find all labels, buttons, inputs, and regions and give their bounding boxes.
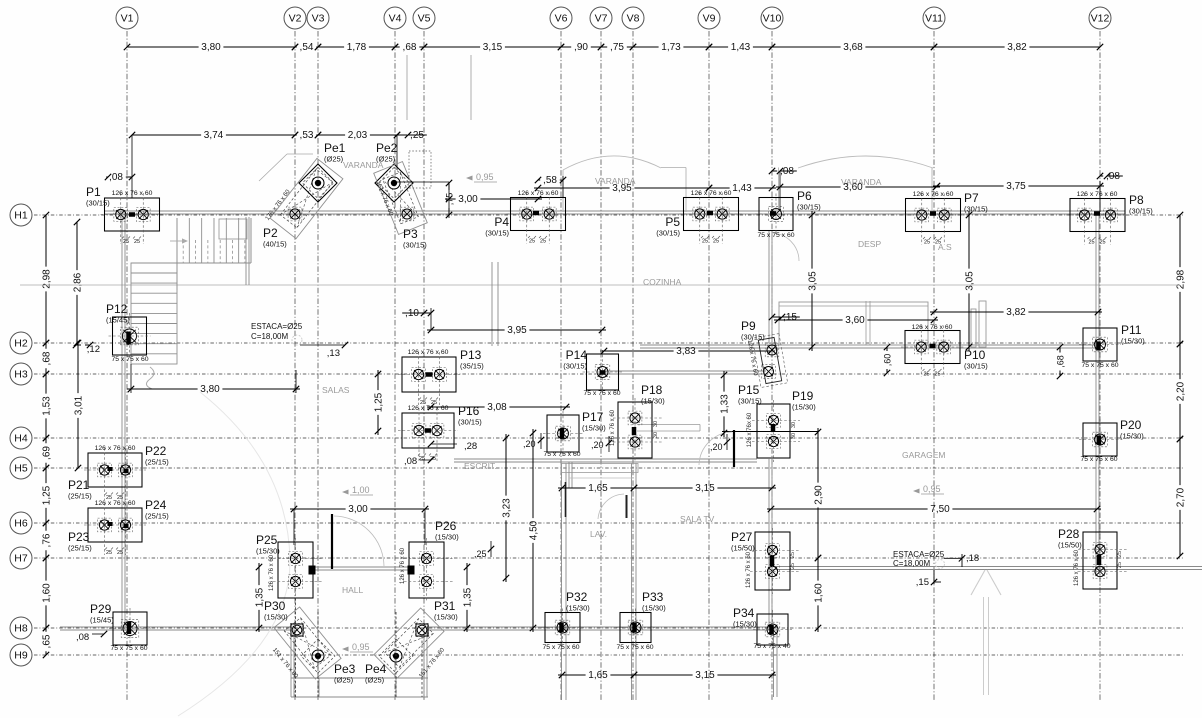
svg-text:Pe1: Pe1 (324, 141, 346, 155)
svg-text:C=18,00M: C=18,00M (251, 332, 288, 341)
svg-text:(30/15): (30/15) (485, 229, 509, 238)
svg-text:1,00: 1,00 (352, 485, 370, 495)
svg-text:ESTACA=Ø25: ESTACA=Ø25 (251, 322, 303, 331)
svg-text:30: 30 (653, 432, 659, 438)
svg-text:(15/30): (15/30) (1120, 432, 1144, 441)
svg-text:P12: P12 (106, 302, 128, 316)
svg-text:P28: P28 (1058, 527, 1080, 541)
svg-text:75 x 75 x 40: 75 x 75 x 40 (753, 643, 790, 650)
svg-text:,68: ,68 (403, 42, 417, 53)
svg-text:126 x 76 x 60: 126 x 76 x 60 (95, 500, 136, 507)
svg-text:Pe3: Pe3 (334, 662, 356, 676)
svg-text:P32: P32 (566, 590, 588, 604)
svg-text:25: 25 (529, 239, 535, 245)
svg-text:(30/15): (30/15) (656, 229, 680, 238)
svg-text:3,80: 3,80 (200, 384, 220, 395)
svg-text:(15/30): (15/30) (566, 604, 590, 613)
svg-text:,68: ,68 (42, 351, 53, 365)
svg-text:V4: V4 (389, 13, 402, 25)
svg-text:P13: P13 (460, 348, 482, 362)
svg-text:25: 25 (923, 372, 929, 378)
svg-text:,12: ,12 (87, 344, 100, 355)
svg-text:P34: P34 (733, 606, 755, 620)
svg-text:ESCRIT.: ESCRIT. (464, 461, 497, 471)
svg-text:P2: P2 (263, 226, 278, 240)
svg-text:75 x 75 x 60: 75 x 75 x 60 (583, 390, 620, 397)
svg-text:,69: ,69 (42, 446, 53, 460)
svg-text:25: 25 (934, 372, 940, 378)
svg-text:(25/15): (25/15) (145, 512, 169, 521)
svg-text:75 x 75 x 60: 75 x 75 x 60 (1080, 456, 1117, 463)
svg-text:,58: ,58 (543, 175, 557, 186)
svg-text:SALA TV: SALA TV (680, 514, 715, 524)
svg-text:V1: V1 (121, 13, 134, 25)
svg-text:0,95: 0,95 (476, 172, 494, 182)
svg-text:1,73: 1,73 (661, 42, 681, 53)
svg-text:,10: ,10 (405, 308, 419, 319)
svg-text:30: 30 (791, 422, 797, 428)
svg-text:H2: H2 (14, 338, 28, 350)
svg-text:(15/30): (15/30) (792, 403, 816, 412)
svg-text:(15/30): (15/30) (264, 613, 288, 622)
svg-text:3,82: 3,82 (1006, 307, 1026, 318)
svg-text:25: 25 (419, 456, 425, 462)
svg-text:(30/15): (30/15) (741, 333, 765, 342)
svg-text:P21: P21 (68, 478, 90, 492)
svg-text:7,50: 7,50 (930, 504, 950, 515)
svg-text:1,53: 1,53 (42, 396, 53, 416)
svg-text:(15/30): (15/30) (256, 547, 280, 556)
svg-text:126 x 76x 60: 126 x 76x 60 (747, 412, 753, 447)
svg-text:P31: P31 (434, 599, 456, 613)
svg-text:(35/15): (35/15) (460, 362, 484, 371)
svg-text:3,05: 3,05 (808, 271, 819, 291)
svg-text:(15/30): (15/30) (733, 620, 757, 629)
svg-text:1,35: 1,35 (255, 587, 266, 607)
svg-text:3,60: 3,60 (845, 315, 865, 326)
svg-text:3,80: 3,80 (201, 42, 221, 53)
svg-text:P30: P30 (264, 599, 286, 613)
svg-text:,08: ,08 (1106, 171, 1120, 182)
svg-text:1,25: 1,25 (374, 392, 385, 412)
svg-text:(Ø25): (Ø25) (365, 676, 385, 685)
svg-text:1,65: 1,65 (588, 670, 608, 681)
svg-text:2,98: 2,98 (42, 269, 53, 289)
svg-text:P5: P5 (665, 215, 680, 229)
svg-text:P17: P17 (582, 410, 604, 424)
svg-text:,65: ,65 (42, 634, 53, 648)
svg-text:DESP: DESP (858, 239, 881, 249)
svg-text:3,95: 3,95 (612, 183, 632, 194)
svg-text:(30/15): (30/15) (964, 205, 988, 214)
svg-text:126 x 76 x 60: 126 x 76 x 60 (408, 349, 449, 356)
svg-text:P23: P23 (68, 530, 90, 544)
svg-text:3,15: 3,15 (695, 483, 715, 494)
svg-text:25: 25 (1117, 551, 1123, 557)
svg-text:P7: P7 (964, 191, 979, 205)
svg-text:P29: P29 (90, 602, 112, 616)
svg-text:V8: V8 (627, 13, 640, 25)
svg-text:25: 25 (1099, 240, 1105, 246)
svg-text:(15/50): (15/50) (731, 544, 755, 553)
svg-text:2,03: 2,03 (348, 130, 368, 141)
svg-text:,15: ,15 (916, 577, 929, 588)
svg-text:(15/30): (15/30) (642, 604, 666, 613)
svg-text:(30/15): (30/15) (797, 203, 821, 212)
svg-text:(25/15): (25/15) (145, 458, 169, 467)
svg-text:25: 25 (123, 239, 129, 245)
svg-text:3,00: 3,00 (348, 504, 368, 515)
svg-text:1,60: 1,60 (42, 583, 53, 603)
svg-text:ESTACA=Ø25: ESTACA=Ø25 (893, 550, 945, 559)
svg-text:,75: ,75 (445, 193, 455, 206)
svg-text:V2: V2 (289, 13, 302, 25)
svg-text:P22: P22 (145, 444, 167, 458)
svg-text:30: 30 (653, 421, 659, 427)
svg-text:Pe4: Pe4 (365, 662, 387, 676)
svg-text:V5: V5 (418, 13, 431, 25)
svg-text:25: 25 (117, 550, 123, 556)
svg-text:(30/15): (30/15) (458, 418, 482, 427)
svg-text:,25: ,25 (410, 130, 424, 141)
svg-text:P24: P24 (145, 498, 167, 512)
svg-text:3,75: 3,75 (1006, 181, 1026, 192)
svg-text:P4: P4 (494, 215, 509, 229)
svg-text:3,23: 3,23 (502, 498, 513, 518)
svg-text:75 x 75 x 60: 75 x 75 x 60 (757, 232, 794, 239)
svg-text:1,60: 1,60 (814, 583, 825, 603)
svg-text:,18: ,18 (966, 553, 979, 564)
svg-text:25: 25 (790, 552, 796, 558)
svg-text:(30/15): (30/15) (563, 362, 587, 371)
svg-text:,20: ,20 (523, 439, 536, 449)
svg-text:75 x 75 x 60: 75 x 75 x 60 (110, 645, 147, 652)
svg-text:H3: H3 (14, 369, 28, 381)
svg-text:126 x 76 x 60: 126 x 76 x 60 (95, 445, 136, 452)
svg-text:3,15: 3,15 (695, 670, 715, 681)
svg-text:,68: ,68 (1056, 355, 1066, 368)
svg-text:4,50: 4,50 (529, 520, 540, 540)
svg-text:25: 25 (430, 456, 436, 462)
svg-text:25: 25 (106, 550, 112, 556)
svg-text:1,78: 1,78 (347, 42, 367, 53)
svg-text:25: 25 (1088, 240, 1094, 246)
svg-text:25: 25 (540, 239, 546, 245)
svg-text:P9: P9 (741, 319, 756, 333)
svg-text:P18: P18 (641, 383, 663, 397)
svg-text:25: 25 (702, 239, 708, 245)
svg-text:1,35: 1,35 (463, 587, 474, 607)
svg-text:25: 25 (790, 563, 796, 569)
svg-text:P16: P16 (458, 404, 480, 418)
svg-text:126 x 76 x 60: 126 x 76 x 60 (112, 190, 153, 197)
svg-text:25: 25 (134, 239, 140, 245)
svg-text:,08: ,08 (404, 456, 417, 467)
svg-text:,90: ,90 (574, 42, 588, 53)
svg-text:126 x 76 x 60: 126 x 76 x 60 (1077, 191, 1118, 198)
svg-text:(15/30): (15/30) (434, 613, 458, 622)
svg-text:126 x 76 x 60: 126 x 76 x 60 (269, 554, 275, 591)
svg-text:(15/30): (15/30) (435, 533, 459, 542)
svg-text:75 x 75 x 60: 75 x 75 x 60 (542, 644, 579, 651)
svg-text:H4: H4 (14, 433, 28, 445)
svg-text:,54: ,54 (300, 42, 314, 53)
svg-text:126 x 76 x 60: 126 x 76 x 60 (912, 324, 953, 331)
svg-text:H5: H5 (14, 463, 28, 475)
svg-text:,76: ,76 (42, 533, 53, 547)
svg-text:1,65: 1,65 (588, 483, 608, 494)
svg-text:(40/15): (40/15) (263, 240, 287, 249)
svg-text:P8: P8 (1129, 193, 1144, 207)
svg-text:(15/30): (15/30) (1121, 337, 1145, 346)
svg-text:(30/15): (30/15) (1129, 207, 1153, 216)
svg-text:V9: V9 (703, 13, 716, 25)
svg-text:Pe2: Pe2 (376, 141, 398, 155)
svg-text:V3: V3 (312, 13, 325, 25)
svg-text:,28: ,28 (464, 441, 477, 452)
svg-text:3,74: 3,74 (204, 130, 224, 141)
svg-text:(15/45): (15/45) (106, 316, 130, 325)
svg-text:,20: ,20 (710, 442, 723, 452)
svg-text:25: 25 (924, 240, 930, 246)
svg-text:126 x 76 x 60: 126 x 76 x 60 (1074, 549, 1080, 586)
svg-text:V10: V10 (763, 13, 782, 25)
svg-text:V12: V12 (1091, 13, 1110, 25)
svg-text:126 x 76 x 60: 126 x 76 x 60 (408, 405, 449, 412)
svg-text:0,95: 0,95 (352, 642, 370, 652)
svg-text:V11: V11 (925, 13, 943, 25)
svg-text:P15: P15 (738, 383, 760, 397)
svg-text:,20: ,20 (591, 440, 604, 450)
svg-text:,25: ,25 (474, 549, 487, 559)
svg-text:H7: H7 (14, 553, 28, 565)
svg-text:2,70: 2,70 (1176, 487, 1187, 507)
svg-text:(30/15): (30/15) (403, 241, 427, 250)
svg-text:COZINHA: COZINHA (643, 277, 682, 287)
svg-text:(30/15): (30/15) (86, 199, 110, 208)
svg-text:P1: P1 (86, 185, 101, 199)
svg-text:,08: ,08 (109, 172, 123, 183)
svg-text:(Ø25): (Ø25) (334, 676, 354, 685)
svg-text:3,68: 3,68 (843, 42, 863, 53)
svg-text:GARAGEM: GARAGEM (902, 450, 945, 460)
svg-text:75 x 75 x 60: 75 x 75 x 60 (543, 451, 580, 458)
svg-text:P33: P33 (642, 590, 664, 604)
svg-text:126 x 76 x 60: 126 x 76 x 60 (518, 190, 559, 197)
svg-text:3,83: 3,83 (676, 346, 696, 357)
svg-text:(Ø25): (Ø25) (376, 155, 396, 164)
svg-text:75 x 75 x 60: 75 x 75 x 60 (1081, 362, 1118, 369)
svg-text:,53: ,53 (300, 130, 314, 141)
svg-text:1,43: 1,43 (731, 42, 751, 53)
svg-text:P6: P6 (797, 189, 812, 203)
svg-text:(Ø25): (Ø25) (324, 155, 344, 164)
svg-text:25: 25 (935, 240, 941, 246)
svg-text:P19: P19 (792, 389, 814, 403)
svg-text:,13: ,13 (327, 348, 340, 359)
svg-text:V6: V6 (555, 13, 568, 25)
svg-text:HALL: HALL (342, 585, 364, 595)
svg-text:126 x 76 x 60: 126 x 76 x 60 (913, 191, 954, 198)
svg-text:3,95: 3,95 (507, 325, 527, 336)
svg-text:2,86: 2,86 (73, 272, 84, 292)
svg-text:P3: P3 (403, 227, 418, 241)
svg-text:75 x 75 x 60: 75 x 75 x 60 (616, 644, 653, 651)
svg-text:(15/30): (15/30) (641, 397, 665, 406)
svg-text:3,82: 3,82 (1007, 42, 1027, 53)
svg-text:P14: P14 (566, 348, 588, 362)
svg-text:,75: ,75 (610, 42, 624, 53)
svg-text:25: 25 (713, 239, 719, 245)
svg-text:25: 25 (1117, 562, 1123, 568)
svg-text:P11: P11 (1121, 323, 1142, 337)
svg-text:(15/50): (15/50) (1058, 541, 1082, 550)
svg-text:3,05: 3,05 (965, 271, 976, 291)
svg-text:75 x 75 x 60: 75 x 75 x 60 (111, 356, 148, 363)
svg-text:(15/45): (15/45) (90, 616, 114, 625)
svg-text:1,43: 1,43 (732, 183, 752, 194)
svg-text:(25/15): (25/15) (68, 492, 92, 501)
svg-text:LAV.: LAV. (590, 529, 607, 539)
svg-text:2,98: 2,98 (1176, 269, 1187, 289)
svg-text:P25: P25 (256, 533, 278, 547)
svg-text:,15: ,15 (783, 312, 797, 323)
svg-text:,08: ,08 (76, 632, 89, 643)
svg-text:P20: P20 (1120, 418, 1142, 432)
svg-text:2,20: 2,20 (1176, 381, 1187, 401)
svg-text:,08: ,08 (780, 166, 794, 177)
svg-text:(15/30): (15/30) (582, 424, 606, 433)
svg-text:(30/15): (30/15) (964, 362, 988, 371)
svg-text:H9: H9 (14, 650, 28, 662)
svg-text:0,95: 0,95 (923, 484, 941, 494)
svg-text:126 x 76 x 60: 126 x 76 x 60 (746, 551, 752, 588)
svg-text:,60: ,60 (883, 354, 893, 367)
svg-text:3,01: 3,01 (74, 395, 85, 415)
svg-text:V7: V7 (595, 13, 608, 25)
svg-text:3,15: 3,15 (483, 42, 503, 53)
svg-text:P10: P10 (964, 348, 986, 362)
svg-text:3,60: 3,60 (843, 182, 863, 193)
svg-text:1,33: 1,33 (720, 394, 731, 414)
svg-text:P26: P26 (435, 519, 457, 533)
svg-text:126 x 76 x 60: 126 x 76 x 60 (691, 190, 732, 197)
svg-text:H8: H8 (14, 623, 28, 635)
svg-text:126 x 76 x 60: 126 x 76 x 60 (400, 547, 406, 584)
svg-text:P27: P27 (731, 530, 753, 544)
svg-text:SALAS: SALAS (322, 385, 350, 395)
svg-text:(25/15): (25/15) (68, 544, 92, 553)
svg-text:H1: H1 (14, 210, 28, 222)
svg-text:3,08: 3,08 (487, 402, 507, 413)
svg-text:1,25: 1,25 (42, 485, 53, 505)
svg-text:H6: H6 (14, 518, 28, 530)
svg-text:3,00: 3,00 (458, 194, 478, 205)
svg-text:30: 30 (791, 433, 797, 439)
svg-text:C=18,00M: C=18,00M (893, 559, 930, 568)
svg-text:2,90: 2,90 (814, 485, 825, 505)
